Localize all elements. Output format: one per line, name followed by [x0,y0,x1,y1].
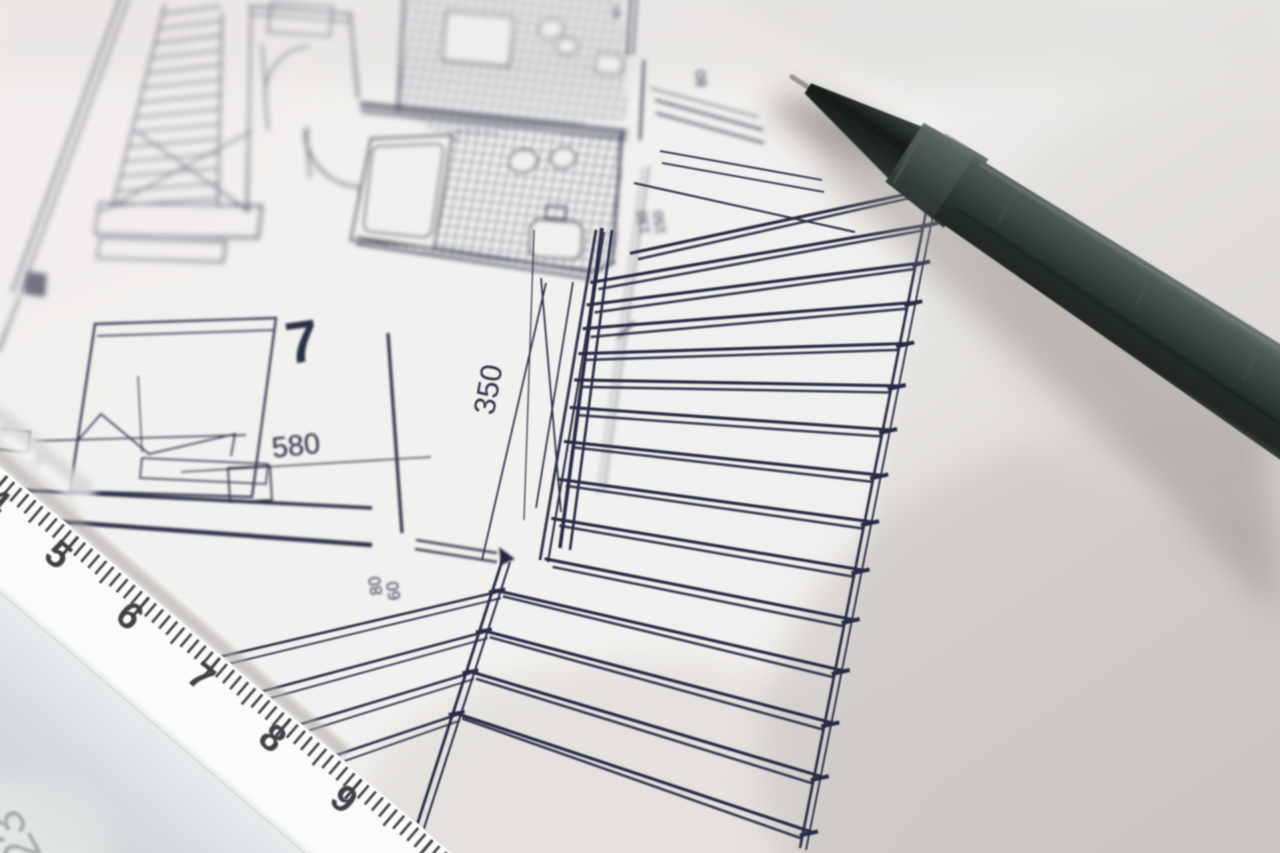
svg-text:150: 150 [650,210,669,235]
svg-text:580: 580 [270,428,321,465]
svg-text:60: 60 [383,580,405,602]
svg-text:80: 80 [692,69,711,88]
